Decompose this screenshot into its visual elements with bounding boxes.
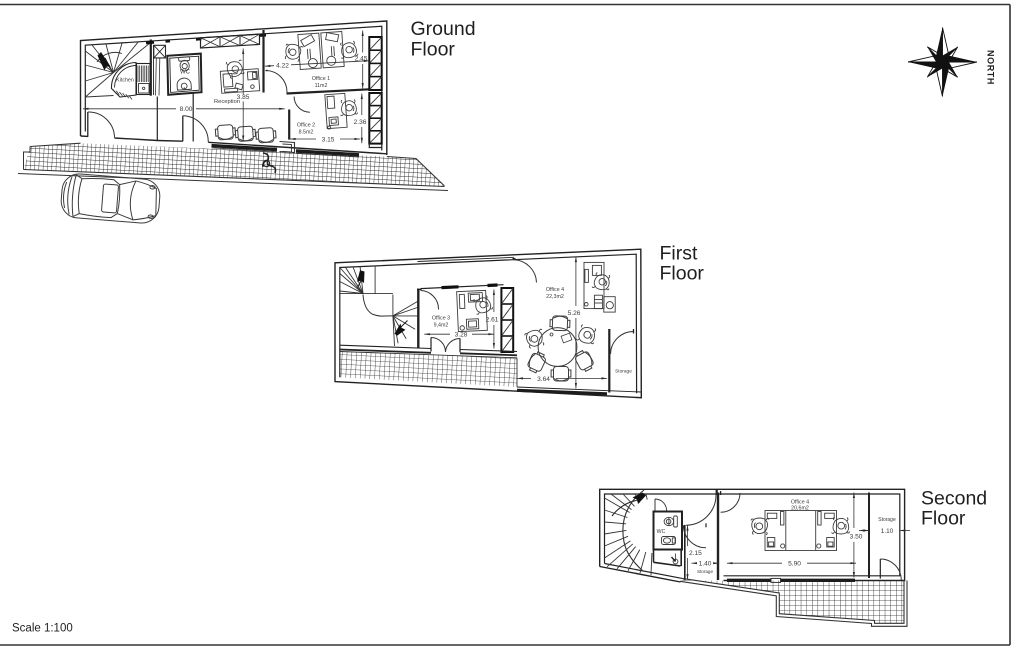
svg-text:Floor: Floor bbox=[660, 263, 705, 285]
svg-text:Storage: Storage bbox=[697, 569, 714, 574]
svg-text:NORTH: NORTH bbox=[986, 50, 996, 85]
svg-text:8.00: 8.00 bbox=[180, 106, 193, 113]
svg-text:WC: WC bbox=[180, 70, 191, 76]
svg-text:Second: Second bbox=[921, 487, 987, 509]
svg-text:Floor: Floor bbox=[921, 508, 966, 530]
svg-text:Storage: Storage bbox=[615, 369, 632, 375]
svg-text:3.85: 3.85 bbox=[237, 94, 250, 101]
svg-text:22,3m2: 22,3m2 bbox=[546, 294, 564, 300]
svg-text:11m2: 11m2 bbox=[315, 83, 328, 89]
svg-text:Office 2: Office 2 bbox=[297, 123, 315, 129]
svg-text:Floor: Floor bbox=[411, 38, 456, 60]
svg-text:3.28: 3.28 bbox=[455, 332, 468, 339]
svg-text:4.22: 4.22 bbox=[276, 63, 289, 70]
svg-text:Office 4: Office 4 bbox=[546, 287, 564, 293]
svg-text:WC: WC bbox=[657, 529, 666, 535]
svg-text:Kitchen: Kitchen bbox=[116, 78, 134, 84]
svg-text:3.50: 3.50 bbox=[850, 534, 863, 541]
svg-text:3.15: 3.15 bbox=[322, 136, 335, 143]
svg-text:1.10: 1.10 bbox=[881, 528, 894, 535]
svg-text:1.40: 1.40 bbox=[699, 561, 712, 568]
svg-text:2.15: 2.15 bbox=[689, 550, 702, 557]
svg-text:5.90: 5.90 bbox=[788, 561, 801, 568]
svg-text:Ground: Ground bbox=[411, 18, 476, 40]
svg-text:Scale 1:100: Scale 1:100 bbox=[12, 623, 73, 635]
svg-text:Office 3: Office 3 bbox=[432, 316, 450, 322]
svg-text:2.36: 2.36 bbox=[354, 119, 367, 126]
svg-text:Office 4: Office 4 bbox=[791, 500, 809, 506]
svg-text:3.64: 3.64 bbox=[537, 376, 550, 383]
svg-text:Office 1: Office 1 bbox=[312, 76, 330, 82]
svg-text:2.61: 2.61 bbox=[486, 317, 499, 324]
svg-text:9,4m2: 9,4m2 bbox=[434, 323, 449, 329]
svg-text:First: First bbox=[660, 242, 698, 264]
svg-text:Storage: Storage bbox=[878, 517, 896, 523]
svg-text:2.45: 2.45 bbox=[355, 56, 368, 63]
svg-text:8.5m2: 8.5m2 bbox=[299, 130, 314, 136]
svg-text:5.26: 5.26 bbox=[568, 310, 581, 317]
svg-text:20,6m2: 20,6m2 bbox=[791, 506, 809, 512]
